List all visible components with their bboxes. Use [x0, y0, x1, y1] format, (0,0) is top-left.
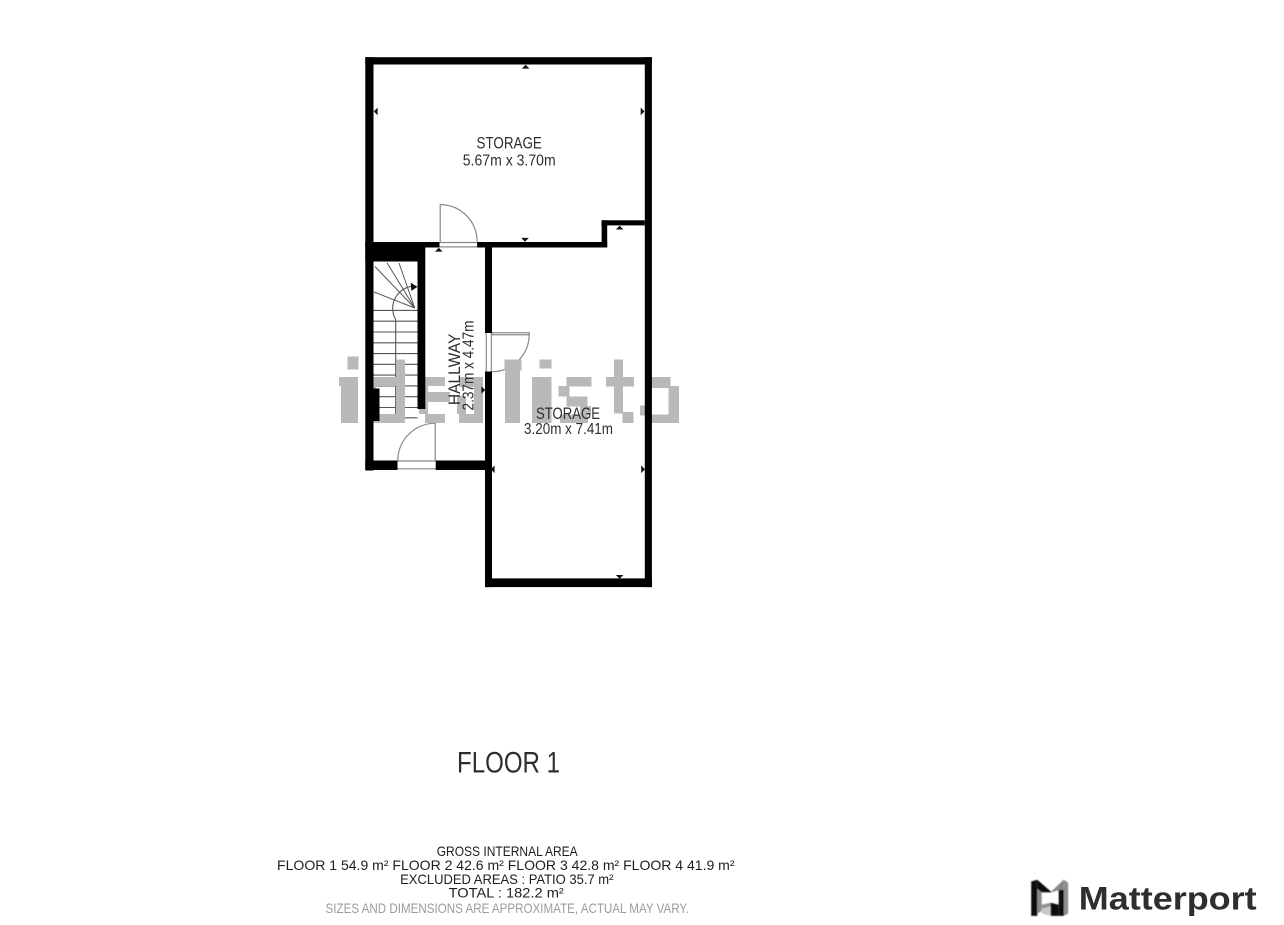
svg-text:GROSS INTERNAL AREA: GROSS INTERNAL AREA — [437, 844, 579, 859]
svg-text:FLOOR 1: FLOOR 1 — [457, 747, 560, 780]
svg-text:SIZES AND DIMENSIONS ARE APPRO: SIZES AND DIMENSIONS ARE APPROXIMATE, AC… — [326, 901, 689, 916]
svg-text:TOTAL : 182.2 m²: TOTAL : 182.2 m² — [449, 885, 565, 900]
svg-text:5.67m x 3.70m: 5.67m x 3.70m — [463, 152, 556, 169]
svg-text:2.37m x 4.47m: 2.37m x 4.47m — [461, 321, 478, 411]
svg-text:Matterport: Matterport — [1079, 881, 1257, 917]
svg-text:FLOOR 1 54.9 m² FLOOR 2 42.6: FLOOR 1 54.9 m² FLOOR 2 42.6 m² FLOOR 3 … — [277, 858, 735, 873]
svg-text:STORAGE: STORAGE — [477, 135, 542, 153]
svg-text:3.20m x 7.41m: 3.20m x 7.41m — [524, 421, 613, 438]
